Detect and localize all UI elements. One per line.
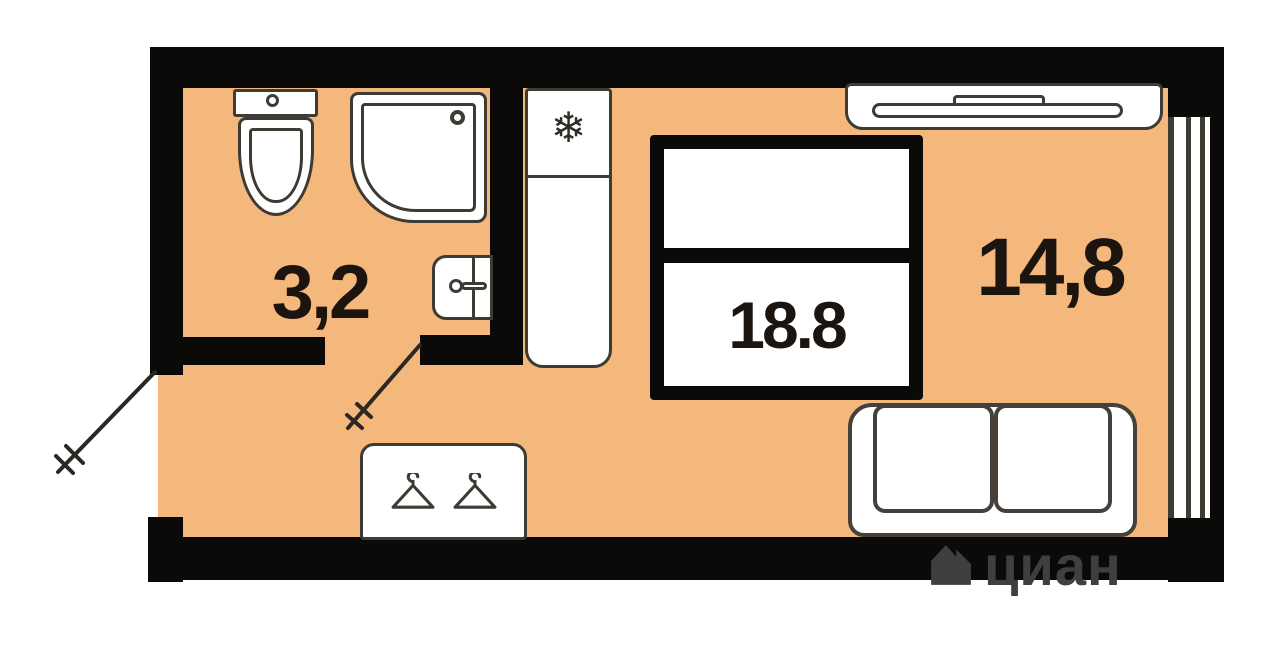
floor-plan: ❄ 18.8 xyxy=(0,0,1280,662)
wall-corner-top-right xyxy=(1168,47,1224,117)
wall-bathroom-bottom-left xyxy=(183,337,325,365)
wall-corner-bottom-right xyxy=(1168,518,1224,582)
shower-tray xyxy=(350,92,487,223)
house-icon xyxy=(928,541,974,592)
fridge-counter-column: ❄ xyxy=(525,88,612,368)
radiator xyxy=(872,103,1123,118)
wall-left-upper xyxy=(150,47,183,375)
wall-right-outer xyxy=(1210,47,1224,582)
hanger-icon xyxy=(452,473,498,516)
shower-drain xyxy=(450,110,465,125)
entrance-door-gap-floor xyxy=(158,375,184,517)
toilet-flush-button xyxy=(266,94,279,107)
fridge-counter-divider xyxy=(528,175,609,178)
entrance-door-swing xyxy=(56,372,155,473)
sink-faucet-spout xyxy=(461,282,487,290)
living-room-area-label: 14,8 xyxy=(930,213,1170,323)
hanger-icon xyxy=(390,473,436,516)
sofa-cushion-left xyxy=(873,404,994,513)
fridge-icon-wrap: ❄ xyxy=(528,103,609,152)
sink xyxy=(432,255,493,320)
sofa-cushion-right xyxy=(994,404,1112,513)
cian-brand-text: циан xyxy=(984,538,1122,594)
wall-top xyxy=(150,47,1224,88)
window-right-pane-line-1 xyxy=(1186,117,1191,518)
wardrobe xyxy=(360,443,527,540)
snowflake-icon: ❄ xyxy=(551,104,586,151)
bed-pillow-section xyxy=(664,149,909,248)
bathroom-area-label: 3,2 xyxy=(235,245,405,340)
window-right-pane-line-2 xyxy=(1200,117,1205,518)
wall-bathroom-right xyxy=(490,88,523,365)
total-area-label: 18.8 xyxy=(728,292,844,358)
wall-bathroom-bottom-right xyxy=(420,335,493,365)
cian-watermark: циан xyxy=(928,538,1122,594)
bed: 18.8 xyxy=(650,135,923,400)
bed-mattress-section: 18.8 xyxy=(664,263,909,386)
